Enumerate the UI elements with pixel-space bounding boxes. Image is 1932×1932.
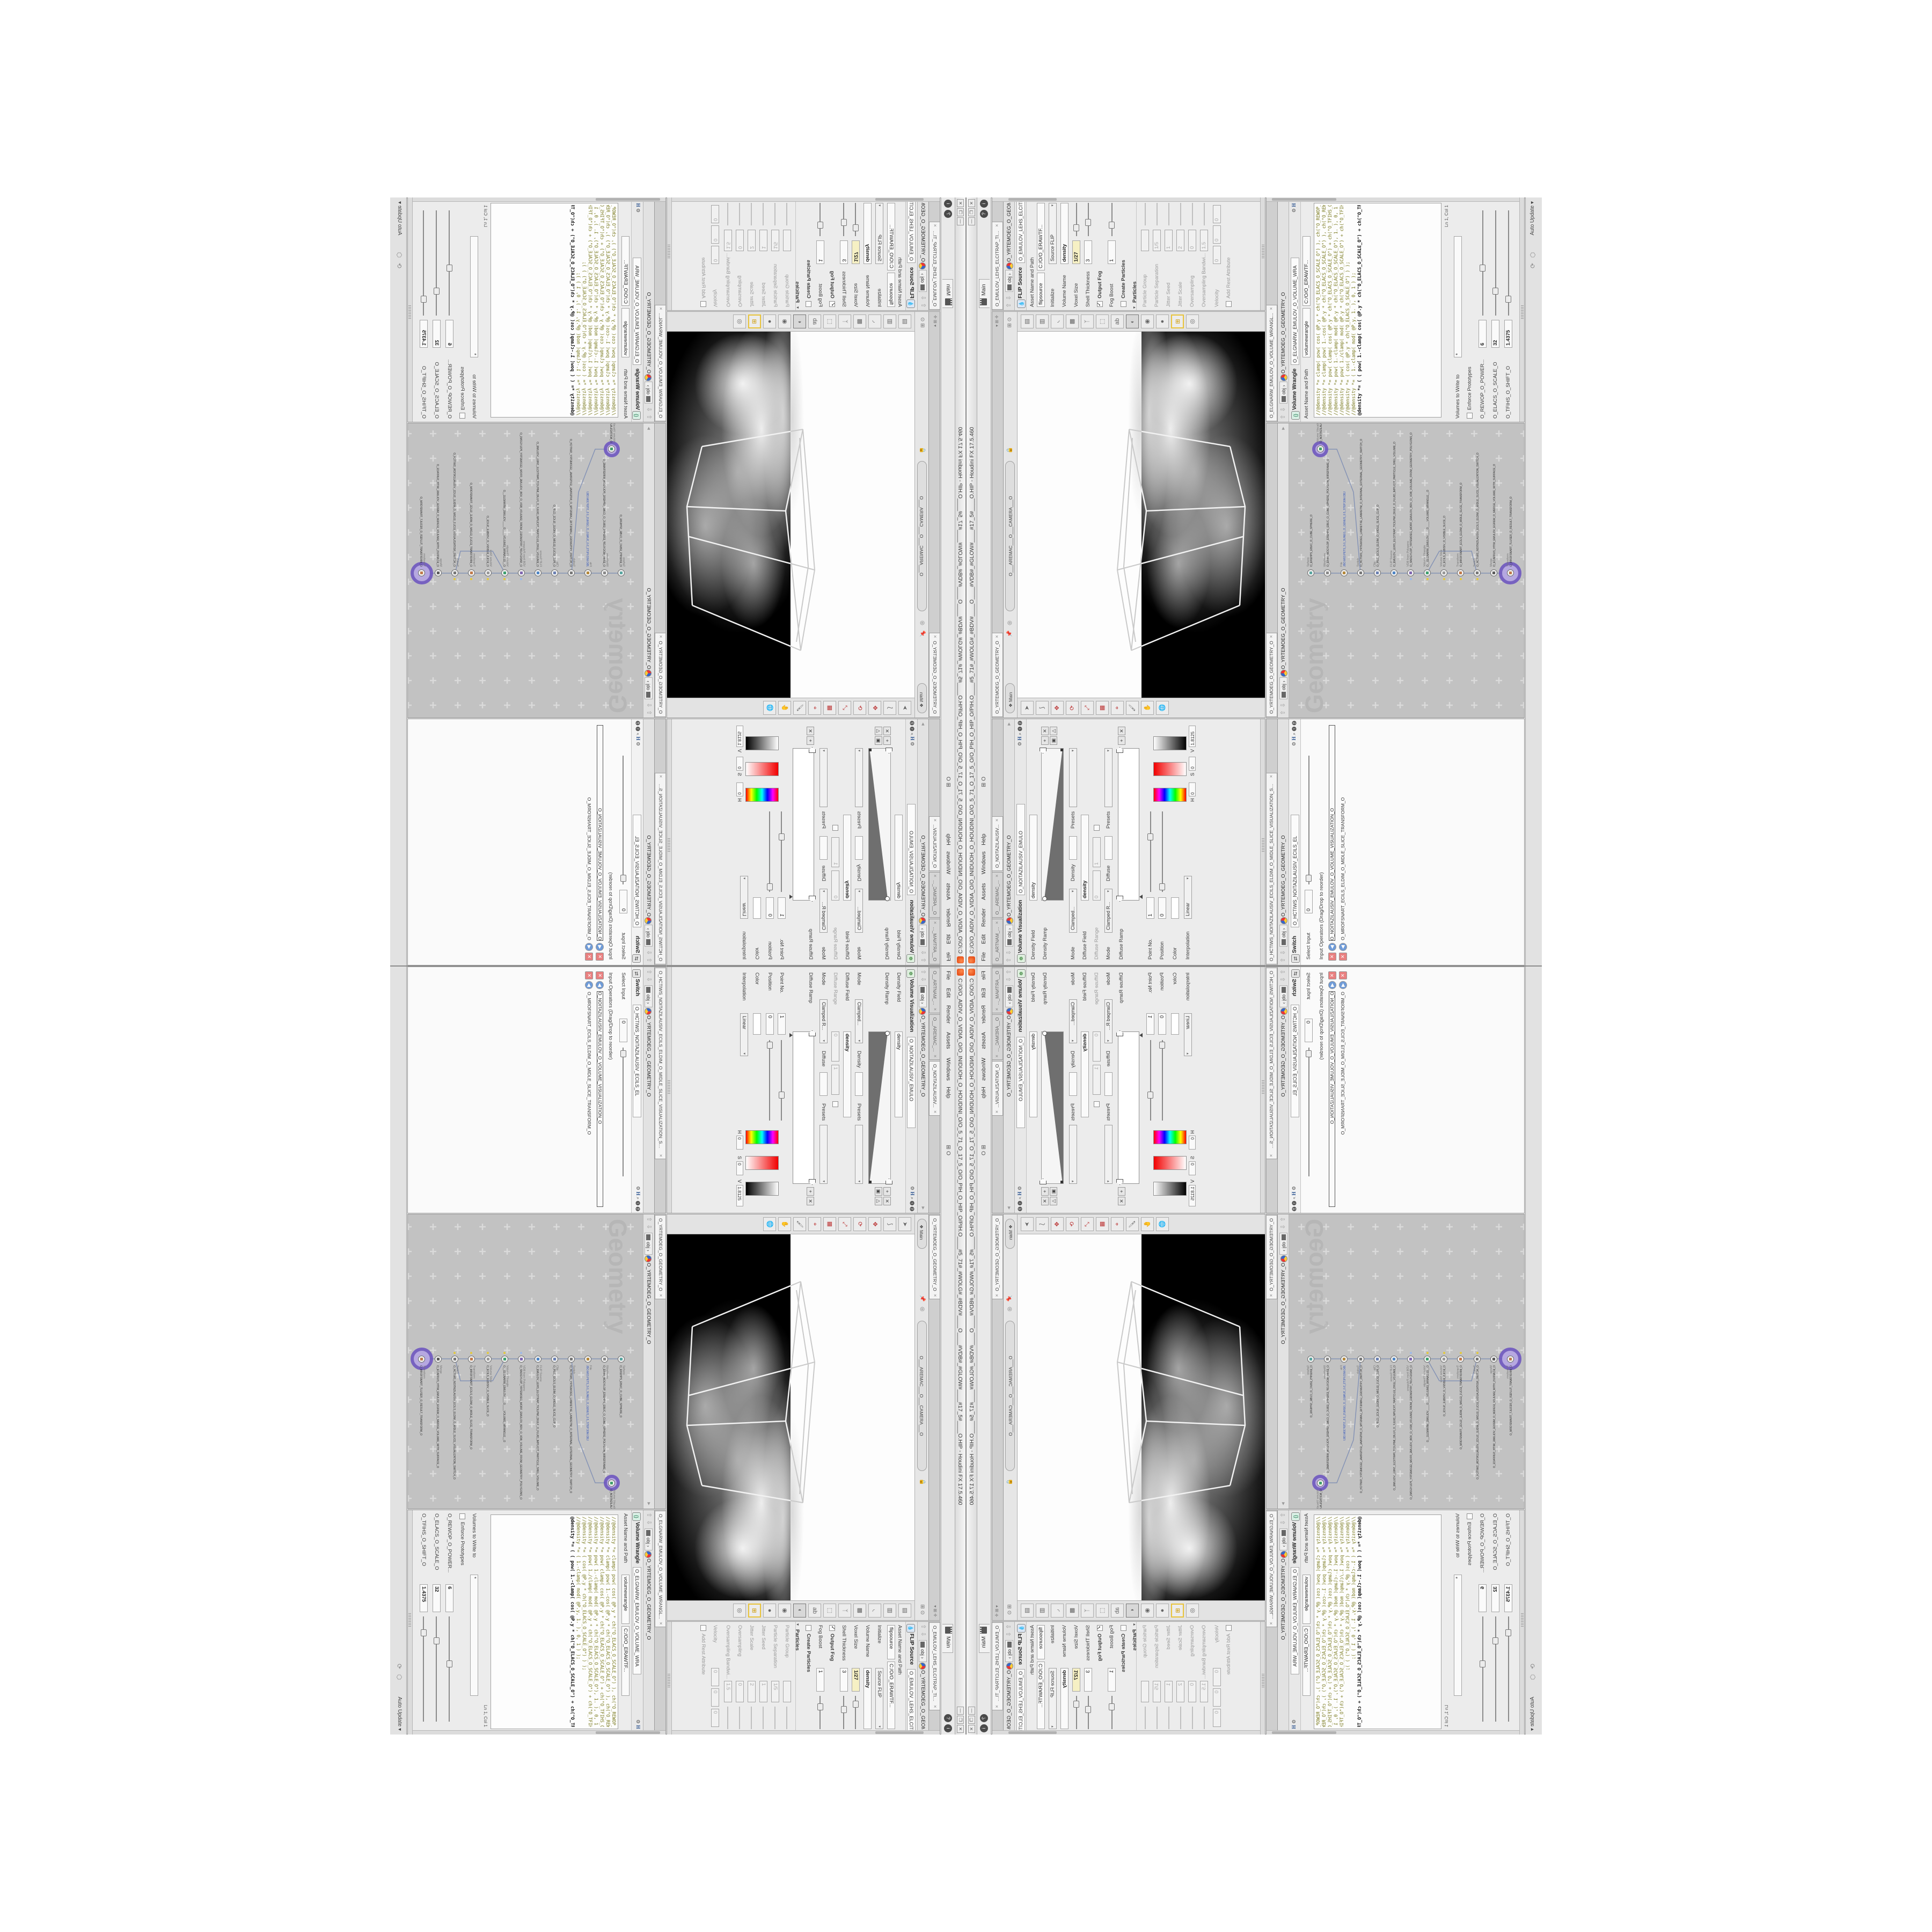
voxel-size-slider[interactable] <box>1076 1696 1077 1729</box>
path-obj-chip[interactable]: obj › <box>645 677 653 699</box>
input-operator-item-0[interactable]: ✕◀O_NOITAZILAUSIV_EMULOV_O_VOLUME_VISUAL… <box>1328 726 1337 961</box>
grid-quad-icon[interactable]: ⊞ <box>1171 1604 1184 1618</box>
lasso-icon[interactable]: ⟆ <box>1036 701 1049 715</box>
initialize-dropdown[interactable]: Source FLIP <box>1049 203 1057 264</box>
diffuse-range-min[interactable]: 0 <box>1093 1031 1101 1062</box>
nav-forward-icon[interactable]: ⇩ <box>1005 1630 1013 1638</box>
help-info-icon[interactable]: i <box>944 200 952 208</box>
network-node[interactable] <box>435 569 442 576</box>
value-strip[interactable] <box>1153 1182 1187 1196</box>
diffuse-field-value[interactable]: density <box>1081 815 1089 901</box>
ramp-point-start[interactable] <box>1042 896 1047 901</box>
menu-assets[interactable]: Assets <box>980 883 987 900</box>
velocity-z[interactable]: 0 <box>1213 205 1221 223</box>
tab-close-icon[interactable]: ✕ <box>933 874 937 877</box>
tab-close-icon[interactable]: ✕ <box>933 224 937 227</box>
param-slider[interactable] <box>1192 1707 1193 1729</box>
window-titlebar[interactable]: C:/O/O_AIDIV_O_VIDIA_O/O_INIDUOH_O_HOUDI… <box>967 967 977 1735</box>
nav-forward-icon[interactable]: ⇩ <box>1279 949 1287 956</box>
param-slider[interactable] <box>763 203 764 225</box>
tab-close-icon[interactable]: ✕ <box>933 1055 937 1058</box>
checker-cube-icon[interactable]: ▩ <box>853 1604 866 1618</box>
viewport-tab[interactable]: O_YRTEMOEG_O_GEOMETRY_O✕ <box>929 633 940 717</box>
volumes-to-write-value[interactable]: * <box>1454 236 1462 357</box>
interpolation-dropdown[interactable]: Linear <box>1184 1013 1192 1056</box>
param-value[interactable]: 1 <box>759 230 767 251</box>
shell-thickness-value[interactable]: 3 <box>840 1668 848 1692</box>
select-input-slider[interactable] <box>1308 756 1309 884</box>
nav-back-icon[interactable]: ⇧ <box>1279 956 1287 964</box>
slider-handle[interactable] <box>1480 1660 1485 1667</box>
volume-name-value[interactable]: density <box>863 1668 872 1729</box>
slider-handle[interactable] <box>421 1629 427 1636</box>
eye-pointer-icon[interactable]: ◉ <box>1141 314 1154 328</box>
param-value[interactable]: 1 <box>759 1681 767 1702</box>
param-slider[interactable] <box>739 203 740 225</box>
channel-slider[interactable] <box>1508 210 1509 316</box>
window-titlebar[interactable]: C:/O/O_AIDIV_O_VIDIA_O/O_INIDUOH_O_HOUDI… <box>955 967 965 1735</box>
path-node-name[interactable]: O_YRTEMOEG_O_GEOMETRY_O <box>646 740 652 917</box>
pages-icon[interactable]: ▥ <box>1036 1604 1049 1618</box>
nav-back-icon[interactable]: ⇧ <box>1279 709 1287 716</box>
slider-handle[interactable] <box>1147 1092 1153 1099</box>
asset-path-field[interactable]: C:/O/O_ERAWTF... <box>887 203 895 270</box>
param-slider[interactable] <box>1168 203 1169 225</box>
asset-name-field[interactable]: flipsource <box>1037 1625 1045 1659</box>
viewport-main-pill[interactable]: ❖ Main <box>917 683 927 713</box>
wrangle-vscrollbar[interactable] <box>1267 1730 1524 1735</box>
param-value[interactable]: 0 <box>736 1681 744 1702</box>
path-obj-chip[interactable]: obj › <box>1279 925 1287 947</box>
viewport-camera-pill[interactable]: O___AREMAC___O___CAMERA___O <box>1005 1321 1015 1471</box>
shell-thickness-value[interactable]: 3 <box>1084 240 1092 264</box>
nav-back-icon[interactable]: ⇧ <box>919 302 927 309</box>
diffuse-range-checkbox[interactable] <box>832 1101 838 1107</box>
mode2-dropdown[interactable]: Clamped R... <box>819 889 828 933</box>
falloff-curve-icon[interactable]: ◟ <box>868 1604 881 1618</box>
node-flag-yellow[interactable] <box>1460 578 1462 580</box>
minimize-button[interactable]: — <box>957 1707 964 1715</box>
mode-dropdown[interactable]: Clamped... <box>855 889 863 933</box>
pane-header-icons[interactable]: ⚙ H ⌕ ➊ ➋ <box>909 721 915 746</box>
network-node[interactable] <box>1324 569 1331 576</box>
ramp-point-end[interactable] <box>869 749 872 751</box>
network-node[interactable] <box>551 1356 558 1363</box>
saturation-strip[interactable] <box>745 1156 779 1170</box>
nav-forward-icon[interactable]: ⇩ <box>645 1519 653 1526</box>
network-node[interactable] <box>1407 569 1414 576</box>
menu-help[interactable]: Help <box>980 1087 987 1099</box>
param-value[interactable] <box>1141 1681 1149 1702</box>
ramp-handle-icon[interactable] <box>885 748 892 753</box>
ortho-toggle-icon[interactable]: ◎ <box>1007 620 1013 625</box>
path-node-name[interactable]: O_YRTEMOEG_O_GEOMETRY_O <box>920 1670 926 1729</box>
path-node-name[interactable]: O_YRTEMOEG_O_GEOMETRY_O <box>920 203 926 262</box>
ramp-tri-button[interactable]: △ <box>1050 1197 1057 1205</box>
node-flag-yellow[interactable] <box>487 578 489 580</box>
path-node-name[interactable]: O_YRTEMOEG_O_GEOMETRY_O <box>646 1015 652 1192</box>
enforce-prototypes-checkbox[interactable] <box>1467 413 1473 419</box>
velocity-z[interactable]: 0 <box>711 1709 719 1727</box>
network-node[interactable] <box>418 569 425 576</box>
slider-handle[interactable] <box>1073 224 1079 231</box>
wrangle-tab[interactable]: O_ELGNARW_EMULOV_O_VOLUME_WRANGL...✕ <box>655 1511 665 1627</box>
interpolation-dropdown[interactable]: Linear <box>1184 876 1192 919</box>
menu-grid-icon[interactable]: ⊞ O <box>980 1145 987 1155</box>
cook-nut-icon[interactable]: ⬡ <box>1528 1673 1537 1681</box>
pane-header-icons[interactable]: ⚙ H ⌕ ➊ ➋ <box>1017 1186 1023 1211</box>
flip-name-field[interactable]: O_EMULOV_LEHS_ELCITRAP_TICI <box>1016 200 1025 263</box>
param-slider[interactable] <box>1192 203 1193 225</box>
param-slider[interactable] <box>774 203 775 225</box>
move-handles-icon[interactable]: ✥ <box>1051 701 1064 715</box>
param-value[interactable]: 1.5 <box>1200 1681 1208 1702</box>
saturation-strip[interactable] <box>1153 762 1187 776</box>
path-node-name[interactable]: O_YRTEMOEG_O_GEOMETRY_O <box>1280 218 1286 374</box>
presets2-dropdown[interactable] <box>819 1125 828 1184</box>
fog-boost-value[interactable]: 1 <box>1108 1668 1116 1692</box>
ramp-handle-icon[interactable] <box>885 1179 892 1184</box>
nav-forward-icon[interactable]: ⇩ <box>645 406 653 413</box>
viewport-tab[interactable]: O_YRTEMOEG_O_GEOMETRY_O✕ <box>992 1215 1003 1299</box>
three-way-icon[interactable]: ᛉ <box>838 314 851 328</box>
diffuse-range-checkbox[interactable] <box>832 825 838 831</box>
diffuse-range-min[interactable]: 0 <box>1093 870 1101 901</box>
network-node[interactable] <box>501 1356 508 1363</box>
volviz-tab-0[interactable]: O__ARTNAM_...✕ <box>929 968 940 1013</box>
diffuse-field-value[interactable]: density <box>843 1031 851 1117</box>
channel-slider[interactable] <box>436 1616 437 1722</box>
shell-slider[interactable] <box>1088 1696 1089 1729</box>
network-node[interactable] <box>584 1356 591 1363</box>
nav-back-icon[interactable]: ⇧ <box>919 968 927 976</box>
slider-handle[interactable] <box>767 883 773 890</box>
refresh-cycle-icon[interactable]: ⟳ <box>1528 1662 1537 1671</box>
volviz-tab-0[interactable]: O__ARTNAM_...✕ <box>992 968 1003 1013</box>
tab-close-icon[interactable]: ✕ <box>1269 775 1274 778</box>
param-value[interactable] <box>783 1681 791 1702</box>
tab-close-icon[interactable]: ✕ <box>933 1294 937 1297</box>
ramp-add-button[interactable]: + <box>1041 736 1049 745</box>
shell-slider[interactable] <box>843 1696 844 1729</box>
scale-handles-icon[interactable]: ⤢ <box>838 701 851 715</box>
path-node-name[interactable]: O_YRTEMOEG_O_GEOMETRY_O <box>1280 508 1286 669</box>
auto-update-selector[interactable]: Auto Update ▾ <box>1529 201 1535 235</box>
channel-slider[interactable] <box>1482 210 1483 316</box>
density-field-value[interactable]: density <box>1029 1031 1037 1117</box>
point-no-value[interactable]: 1 <box>1146 1013 1154 1035</box>
wrangle-vscrollbar[interactable] <box>408 1730 665 1735</box>
paint-icon[interactable]: 🖌 <box>793 1217 806 1231</box>
param-slider[interactable] <box>751 203 752 225</box>
slider-handle[interactable] <box>817 1703 823 1710</box>
path-node-name[interactable]: O_YRTEMOEG_O_GEOMETRY_O <box>646 508 652 669</box>
wrangle-tab[interactable]: O_ELGNARW_EMULOV_O_VOLUME_WRANGL...✕ <box>1267 305 1277 421</box>
diffuse-field-value[interactable]: density <box>1081 1031 1089 1117</box>
param-value[interactable]: 1/5 <box>1153 1681 1161 1702</box>
node-flag-yellow[interactable] <box>1443 578 1445 580</box>
wrangle-hscrollbar[interactable] <box>408 197 413 422</box>
path-node-name[interactable]: O_YRTEMOEG_O_GEOMETRY_O <box>646 1558 652 1714</box>
path-obj-chip[interactable]: obj › <box>919 1640 927 1662</box>
help-question-icon[interactable]: ? <box>980 210 988 218</box>
rotate-handles-icon[interactable]: ⟳ <box>853 701 866 715</box>
voxel-size-slider[interactable] <box>855 1696 856 1729</box>
create-particles-checkbox[interactable] <box>806 1625 811 1631</box>
paint-icon[interactable]: 🖌 <box>1126 701 1139 715</box>
diffuse-ramp-delete-button[interactable]: ✕ <box>807 1197 814 1205</box>
velocity-y[interactable]: 0 <box>711 225 719 244</box>
switch-name-field[interactable]: O_HCTIWS_NOITAZILAUSIV_ECILS_EL <box>1291 815 1299 927</box>
grid-quad-icon[interactable]: ⊞ <box>1171 314 1184 328</box>
mode-dropdown[interactable]: Clamped... <box>1069 999 1077 1043</box>
volviz-tab-1[interactable]: O__AREMAC_...✕ <box>992 872 1003 918</box>
param-value[interactable]: 2 <box>1176 230 1184 251</box>
channel-value[interactable]: 1.4375 <box>420 320 428 348</box>
ramp-point-start[interactable] <box>1042 1031 1047 1036</box>
network-canvas[interactable]: Geometry SphereO_EREHPS_EBUC_O_CUBE_SPHE… <box>1289 1214 1524 1509</box>
tab-close-icon[interactable]: ✕ <box>658 1154 663 1157</box>
viewport-camera-pill[interactable]: O___AREMAC___O___CAMERA___O <box>1005 461 1015 611</box>
voxel-size-value[interactable]: 1/27 <box>1072 240 1080 264</box>
channel-value[interactable]: 1.4375 <box>1504 1584 1512 1612</box>
slider-handle[interactable] <box>1085 219 1091 226</box>
channel-value[interactable]: 32 <box>1491 1584 1499 1612</box>
auto-update-selector[interactable]: Auto Update ▾ <box>397 1697 402 1731</box>
viewport-layout-icon[interactable]: ⊞ ⊙ <box>1007 1604 1013 1615</box>
channel-slider[interactable] <box>436 210 437 316</box>
color-swatch[interactable] <box>753 1013 761 1035</box>
minimize-button[interactable]: — <box>968 217 975 225</box>
param-slider[interactable] <box>774 1707 775 1729</box>
channel-slider[interactable] <box>1508 1616 1509 1722</box>
input-operator-item-0[interactable]: ✕◀O_NOITAZILAUSIV_EMULOV_O_VOLUME_VISUAL… <box>1328 971 1337 1206</box>
menu-grid-icon[interactable]: ⊞ O <box>945 1145 952 1155</box>
wrangle-name-field[interactable]: O_ELGNARW_EMULOV_O_VOLUME_WRA <box>633 1567 641 1674</box>
network-node[interactable] <box>1424 569 1431 576</box>
presets2-dropdown[interactable] <box>1104 1125 1113 1184</box>
tab-close-icon[interactable]: ✕ <box>658 775 663 778</box>
path-node-name[interactable]: O_YRTEMOEG_O_GEOMETRY_O <box>1280 1558 1286 1714</box>
lock-camera-icon[interactable]: 🔒 <box>1007 1479 1013 1485</box>
network-node[interactable] <box>1474 1356 1481 1363</box>
nav-back-icon[interactable]: ⇧ <box>1279 1511 1287 1519</box>
orbit-sphere-icon[interactable]: ◎ <box>1186 1604 1199 1618</box>
nav-forward-icon[interactable]: ⇩ <box>919 949 927 956</box>
nav-back-icon[interactable]: ⇧ <box>1279 968 1287 976</box>
velocity-x[interactable]: 0 <box>711 246 719 264</box>
density-value-field[interactable] <box>855 1072 863 1096</box>
menu-file[interactable]: File <box>945 952 952 961</box>
path-obj-chip[interactable]: obj › <box>645 382 653 404</box>
tab-close-icon[interactable]: ✕ <box>995 1705 999 1708</box>
network-node[interactable] <box>451 1356 458 1363</box>
menu-file[interactable]: File <box>980 952 987 961</box>
menu-windows[interactable]: Windows <box>945 1058 952 1081</box>
page-icon[interactable]: ▤ <box>898 314 911 328</box>
lasso-icon[interactable]: ⟆ <box>883 1217 896 1231</box>
node-flag-blue[interactable] <box>1410 1352 1412 1354</box>
diffuse-ramp-widget[interactable] <box>793 748 814 901</box>
network-node[interactable] <box>1341 1356 1348 1363</box>
slider-handle[interactable] <box>1085 1706 1091 1713</box>
network-node[interactable] <box>1391 569 1397 576</box>
ramp-handle-left-icon[interactable] <box>809 896 816 902</box>
page-icon[interactable]: ▤ <box>1021 1604 1034 1618</box>
minimize-button[interactable]: — <box>968 1707 975 1715</box>
path-node-name[interactable]: O_YRTEMOEG_O_GEOMETRY_O <box>1280 740 1286 917</box>
tab-close-icon[interactable]: ✕ <box>995 1008 999 1011</box>
mode-dropdown[interactable]: Clamped... <box>1069 889 1077 933</box>
param-slider[interactable] <box>727 203 728 225</box>
velocity-y[interactable]: 0 <box>1213 1688 1221 1707</box>
three-way-icon[interactable]: ᛉ <box>1081 1604 1094 1618</box>
pane-split-icons[interactable]: ▾ ⊞ ✛ <box>994 1605 999 1617</box>
network-node[interactable] <box>584 569 591 576</box>
nav-back-icon[interactable]: ⇧ <box>645 956 653 964</box>
volviz-tab-1[interactable]: O__AREMAC_...✕ <box>929 1014 940 1060</box>
viewport-layout-icon[interactable]: ⊞ ⊙ <box>919 317 925 328</box>
slider-handle[interactable] <box>1505 1629 1511 1636</box>
network-node[interactable] <box>1374 1356 1381 1363</box>
ortho-toggle-icon[interactable]: ◎ <box>1007 1307 1013 1312</box>
asset-path-field[interactable]: C:/O/O_ERAWTF... <box>1302 1626 1311 1696</box>
path-node-name[interactable]: O_YRTEMOEG_O_GEOMETRY_O <box>646 218 652 374</box>
volviz-tab-2[interactable]: O_NOITAZILAUSIV...✕ <box>929 1061 940 1116</box>
ramp-handle-right-icon[interactable] <box>1116 747 1123 753</box>
density-ramp-widget[interactable] <box>1041 1031 1064 1184</box>
scale-handles-icon[interactable]: ⤢ <box>1081 1217 1094 1231</box>
path-node-name[interactable]: O_YRTEMOEG_O_GEOMETRY_O <box>920 740 926 917</box>
select-input-slider[interactable] <box>623 756 624 884</box>
hue-strip[interactable] <box>745 1130 779 1144</box>
path-node-name[interactable]: O_YRTEMOEG_O_GEOMETRY_O <box>1280 1263 1286 1424</box>
menu-render[interactable]: Render <box>980 909 987 927</box>
asset-name-field[interactable]: volumewrangle <box>621 1575 630 1624</box>
pages-icon[interactable]: ▥ <box>1036 314 1049 328</box>
flip-tab[interactable]: O_EMULOV_LEHS_ELCITRAP_TICILPMI_DIULF_O_… <box>992 1622 1003 1710</box>
add-rest-checkbox[interactable] <box>1226 301 1232 307</box>
pages-icon[interactable]: ▥ <box>883 314 896 328</box>
desktop-tab-main[interactable]: Main <box>979 1624 990 1653</box>
channel-value[interactable]: 32 <box>1491 320 1499 348</box>
volviz-tab-1[interactable]: O__AREMAC_...✕ <box>929 872 940 918</box>
path-node-name[interactable]: O_YRTEMOEG_O_GEOMETRY_O <box>1006 1670 1012 1729</box>
nav-back-icon[interactable]: ⇧ <box>919 1623 927 1630</box>
nav-forward-icon[interactable]: ⇩ <box>645 976 653 983</box>
ramp-handle-left-icon[interactable] <box>1116 896 1123 902</box>
volviz-tab-2[interactable]: O_NOITAZILAUSIV...✕ <box>992 816 1003 871</box>
delete-item-icon[interactable]: ✕ <box>585 953 593 961</box>
slider-handle[interactable] <box>434 288 440 295</box>
network-node[interactable] <box>1407 1356 1414 1363</box>
particles-section-label[interactable]: Particles <box>794 1629 800 1651</box>
slider-handle[interactable] <box>421 296 427 303</box>
ramp-handle-left-icon[interactable] <box>1116 1030 1123 1036</box>
node-flag-yellow[interactable] <box>1460 1352 1462 1354</box>
minimize-button[interactable]: — <box>957 217 964 225</box>
diffuse-range-max[interactable]: 1 <box>1093 1065 1101 1095</box>
network-node[interactable] <box>1307 1356 1314 1363</box>
add-rest-checkbox[interactable] <box>700 1625 706 1631</box>
fog-boost-slider[interactable] <box>1111 1696 1113 1729</box>
nav-forward-icon[interactable]: ⇩ <box>1279 976 1287 983</box>
dark-sphere-icon[interactable]: ● <box>1156 314 1169 328</box>
insert-item-icon[interactable]: ◀ <box>1339 981 1347 989</box>
point-no-slider[interactable] <box>781 1040 782 1121</box>
menu-windows[interactable]: Windows <box>945 851 952 874</box>
nav-back-icon[interactable]: ⇧ <box>645 709 653 716</box>
nav-back-icon[interactable]: ⇧ <box>919 956 927 964</box>
slider-handle[interactable] <box>817 222 823 229</box>
view-pan-icon[interactable]: ✋ <box>778 1217 791 1231</box>
param-value[interactable]: 1.5 <box>1200 230 1208 251</box>
help-question-icon[interactable]: ? <box>944 210 952 218</box>
wrangle-hscrollbar[interactable] <box>408 1510 413 1735</box>
slider-handle[interactable] <box>1109 222 1115 229</box>
viewport-main-pill[interactable]: ❖ Main <box>917 1219 927 1249</box>
asset-path-field[interactable]: C:/O/O_ERAWTF... <box>1037 1662 1045 1729</box>
param-value[interactable]: 0 <box>1188 230 1196 251</box>
enforce-prototypes-checkbox[interactable] <box>459 1513 465 1519</box>
flip-hscrollbar[interactable] <box>1260 1622 1265 1735</box>
param-slider[interactable] <box>1180 1707 1181 1729</box>
path-node-name[interactable]: O_YRTEMOEG_O_GEOMETRY_O <box>1006 740 1012 917</box>
cook-nut-icon[interactable]: ⬡ <box>395 251 404 259</box>
move-handles-icon[interactable]: ✥ <box>868 701 881 715</box>
tab-close-icon[interactable]: ✕ <box>1269 635 1274 638</box>
tab-close-icon[interactable]: ✕ <box>933 921 937 924</box>
channel-slider[interactable] <box>423 210 424 316</box>
network-node[interactable] <box>1507 569 1514 576</box>
path-obj-chip[interactable]: obj › <box>919 985 927 1007</box>
param-value[interactable]: 1 <box>1165 1681 1173 1702</box>
velocity-z[interactable]: 0 <box>711 205 719 223</box>
switch-name-field[interactable]: O_HCTIWS_NOITAZILAUSIV_ECILS_EL <box>1291 1005 1299 1117</box>
switch-tab[interactable]: O_HCTIWS_NOITAZILAUSIV_ECILS_ELDIM_O_MID… <box>1267 968 1277 1159</box>
network-node[interactable] <box>1440 1356 1447 1363</box>
slider-handle[interactable] <box>620 1050 626 1057</box>
point-no-slider[interactable] <box>1150 1040 1151 1121</box>
viewport-canvas[interactable] <box>667 1234 914 1600</box>
output-fog-checkbox[interactable] <box>829 1625 835 1631</box>
param-value[interactable]: 1/5 <box>1153 230 1161 251</box>
slider-handle[interactable] <box>620 875 626 882</box>
asset-name-field[interactable]: volumewrangle <box>1302 308 1311 357</box>
param-value[interactable]: 1.5 <box>724 1681 732 1702</box>
output-fog-checkbox[interactable] <box>1097 1625 1103 1631</box>
view-orbit-icon[interactable]: 🌐 <box>1156 1217 1169 1231</box>
paint-icon[interactable]: 🖌 <box>1126 1217 1139 1231</box>
nav-forward-icon[interactable]: ⇩ <box>1005 976 1013 983</box>
ramp-delete-button[interactable]: ✕ <box>883 1197 891 1205</box>
diffuse-ramp-add-button[interactable]: + <box>807 736 814 745</box>
select-input-value[interactable]: 0 <box>1305 890 1313 913</box>
diffuse-range-max[interactable]: 1 <box>831 837 839 867</box>
asset-path-field[interactable]: C:/O/O_ERAWTF... <box>1302 236 1311 306</box>
menu-file[interactable]: File <box>945 971 952 980</box>
density-value-field[interactable] <box>855 836 863 860</box>
tab-close-icon[interactable]: ✕ <box>995 1110 999 1114</box>
ramp-point-end[interactable] <box>869 1181 872 1183</box>
path-menu-arrow-icon[interactable]: ▸ <box>645 425 653 432</box>
dark-sphere-icon[interactable]: ● <box>1156 1604 1169 1618</box>
voxel-size-slider[interactable] <box>855 203 856 236</box>
pane-header-icons[interactable]: ⚙ H ⌕ ➊ ➋ <box>909 1186 915 1211</box>
wrangle-tab[interactable]: O_ELGNARW_EMULOV_O_VOLUME_WRANGL...✕ <box>655 305 665 421</box>
slider-handle[interactable] <box>853 224 859 231</box>
asset-name-field[interactable]: volumewrangle <box>1302 1575 1311 1624</box>
